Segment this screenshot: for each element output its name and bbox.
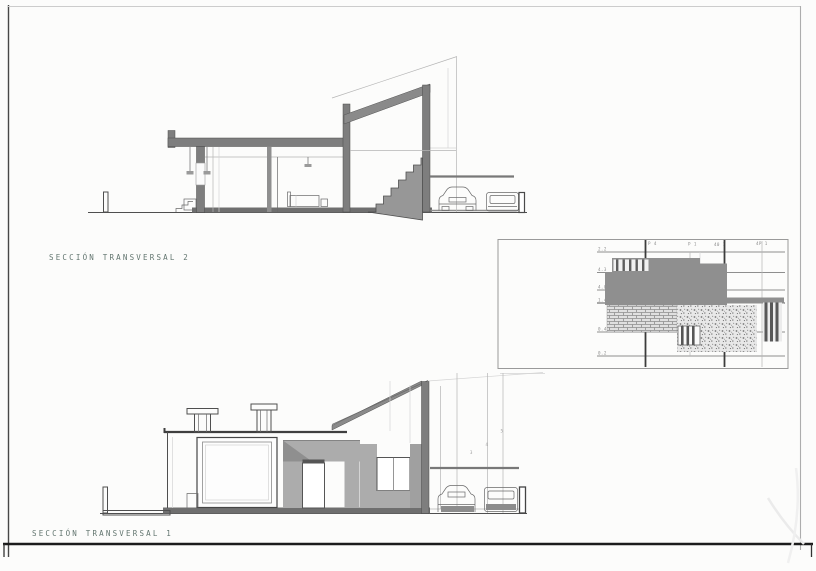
dimension-mark: 3 [470,450,473,455]
drawing-sheet: SECCIÓN TRANSVERSAL 2 2.2 4.3 4.0 1.4 0.… [0,0,816,571]
column-labels: P 4 P 1 40 1 4P 1 [648,241,768,247]
column-label: P 4 [648,241,657,246]
car-front-view [439,187,476,211]
car-rear-view [485,488,518,512]
level-label: 0.2 [598,351,607,356]
right-boundary-wall [520,487,526,513]
bedroom-furniture [288,157,328,207]
section-2-title: SECCIÓN TRANSVERSAL 2 [49,253,190,262]
construction-detail-drawing: 2.2 4.3 4.0 1.4 0.4 0.2 P 4 P 1 40 1 4P … [498,240,788,369]
left-boundary-post [104,192,109,212]
level-label: 2.2 [598,247,607,252]
masonry-hatch [607,305,677,332]
rear-volume-elevation [283,441,422,509]
right-cut-wall [423,85,431,212]
column-label: P 1 [688,242,697,247]
chimney [187,409,218,433]
level-label: 0.4 [598,327,607,332]
cross-section-1-drawing: 3 4 5 [100,373,545,516]
dimension-mark: 4 [486,442,489,447]
flat-roof-slab [168,131,348,158]
chimney [251,404,277,432]
blueprint-canvas: SECCIÓN TRANSVERSAL 2 2.2 4.3 4.0 1.4 0.… [0,0,816,571]
level-label: 4.3 [598,267,607,272]
roof-slab-mass [605,258,784,305]
entry-steps [176,199,196,212]
right-boundary-wall [519,193,525,213]
left-cut-wall [196,147,205,213]
cross-section-2-drawing [88,57,527,221]
ground-line [88,208,527,213]
left-retaining-wall [103,487,170,515]
right-cut-wall [422,382,430,514]
section-1-title: SECCIÓN TRANSVERSAL 1 [32,529,173,538]
car-front-view [438,486,475,513]
wall-niche [187,494,198,508]
shed-roof-band [332,373,545,444]
door [303,463,325,508]
large-window [197,438,277,508]
car-rear-view [487,193,519,212]
scan-artifacts [768,468,804,563]
